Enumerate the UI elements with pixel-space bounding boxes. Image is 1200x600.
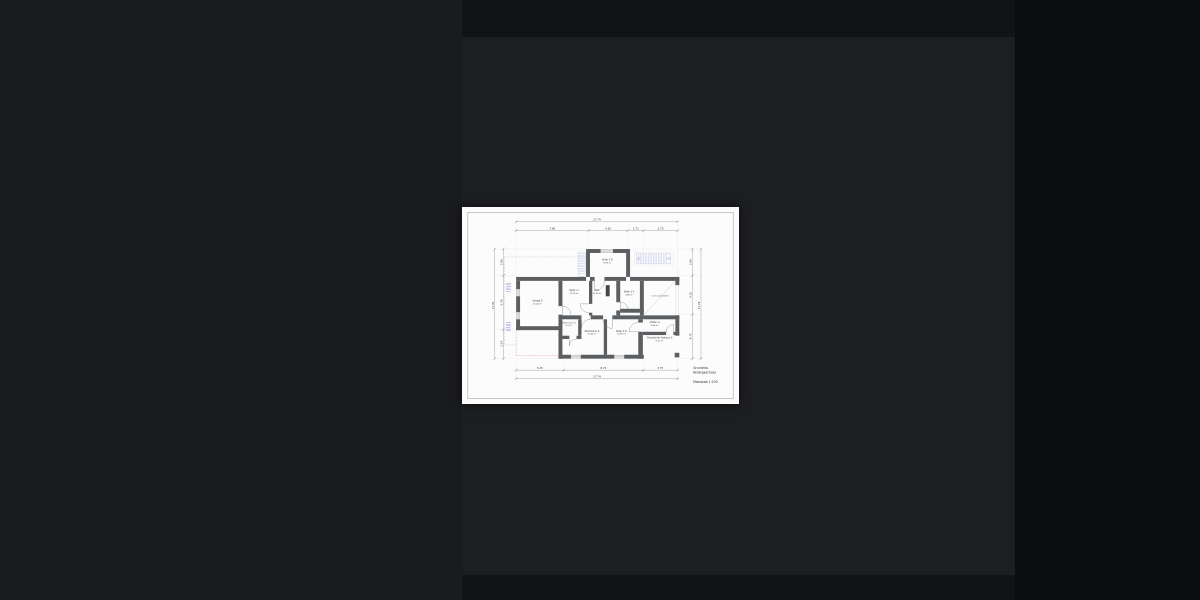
room-garage-area: 23.24 m² (533, 303, 542, 306)
floor-plan-drawing: 17.74 7.96 4.30 1.73 3.75 5.25 8.74 3.75… (462, 207, 739, 404)
viewer-left-panel (0, 0, 462, 600)
room-freiraum-name: Überdachter Freiraum G (647, 336, 673, 339)
dim-bottom-seg2: 8.74 (601, 366, 607, 370)
title-block: Grundriss Kellergeschoss Massstab 1:100 (693, 366, 718, 384)
dim-bottom-seg1: 5.25 (537, 366, 543, 370)
lightwell-grate (578, 252, 585, 276)
dim-left-seg3: 3.14 (499, 341, 503, 347)
room-waschraum-area: 12.40 m² (587, 333, 596, 336)
dim-right-seg3: 4.75 (688, 333, 692, 339)
viewer-right-panel (1015, 0, 1200, 600)
screenshot-stage: 17.74 7.96 4.30 1.73 3.75 5.25 8.74 3.75… (0, 0, 1200, 600)
dim-bottom-seg3: 3.75 (657, 366, 663, 370)
viewer-top-band (462, 0, 1015, 37)
room-keller3-name: Keller 3 III (602, 259, 613, 262)
dim-right-seg1: 2.86 (688, 259, 692, 265)
room-abstell-area: 4.44 m² (651, 324, 659, 327)
room-abstell-name: Abstell. G (650, 321, 661, 324)
floor-plan-page[interactable]: 17.74 7.96 4.30 1.73 3.75 5.25 8.74 3.75… (462, 207, 739, 404)
dim-top-seg4: 3.75 (658, 226, 664, 230)
viewer-bottom-band (462, 575, 1015, 600)
plan-title-line1: Grundriss (693, 366, 708, 370)
dim-left-seg2: 5.76 (499, 299, 503, 305)
room-waschraum-name: Waschraum G (585, 330, 600, 333)
room-keller3-area: 9.09 m² (603, 261, 611, 264)
nicht-unterkellert-area (644, 282, 678, 316)
window-spec-annotation-marks (506, 283, 511, 331)
dim-bottom-overall: 17.74 (593, 374, 601, 378)
red-dashed-lines (516, 331, 558, 356)
plan-scale: Massstab 1:100 (693, 380, 718, 384)
room-flur-area: 13.05 m² (593, 292, 602, 295)
dim-top-seg3: 1.73 (633, 226, 639, 230)
room-freiraum-area: 9.27 m² (656, 339, 664, 342)
dim-right-overall: 11.76 (697, 301, 701, 309)
room-keller2-area: 5.86 m² (625, 293, 633, 296)
room-garage-name: Garage G (532, 300, 542, 303)
dimension-texts: 17.74 7.96 4.30 1.73 3.75 5.25 8.74 3.75… (491, 217, 701, 378)
room-raederraum-area: 4.1 m² (566, 324, 573, 327)
room-raederraum-name: Räderraum G (562, 322, 576, 325)
dim-top-seg2: 4.30 (605, 226, 611, 230)
nicht-unterkellert-label: nicht unterkellert (651, 294, 669, 297)
dim-top-seg1: 7.96 (549, 226, 555, 230)
dim-left-seg1: 2.86 (499, 259, 503, 265)
room-keller1-area: 12.14 m² (570, 292, 579, 295)
room-keller4-name: Keller 4 IV (616, 330, 627, 333)
room-flur-name: Flur (595, 289, 599, 292)
cellar-stair-grate (637, 254, 671, 264)
dim-left-overall: 11.76 (491, 301, 495, 309)
dim-top-overall: 17.74 (593, 217, 601, 221)
chimney (606, 285, 610, 296)
room-keller2-name: Keller 2 II (624, 290, 634, 293)
plan-title-line2: Kellergeschoss (693, 370, 716, 374)
room-keller1-name: Keller 1 I (570, 289, 580, 292)
dim-right-seg2: 4.15 (688, 292, 692, 298)
room-keller4-area: 13.90 m² (617, 333, 626, 336)
